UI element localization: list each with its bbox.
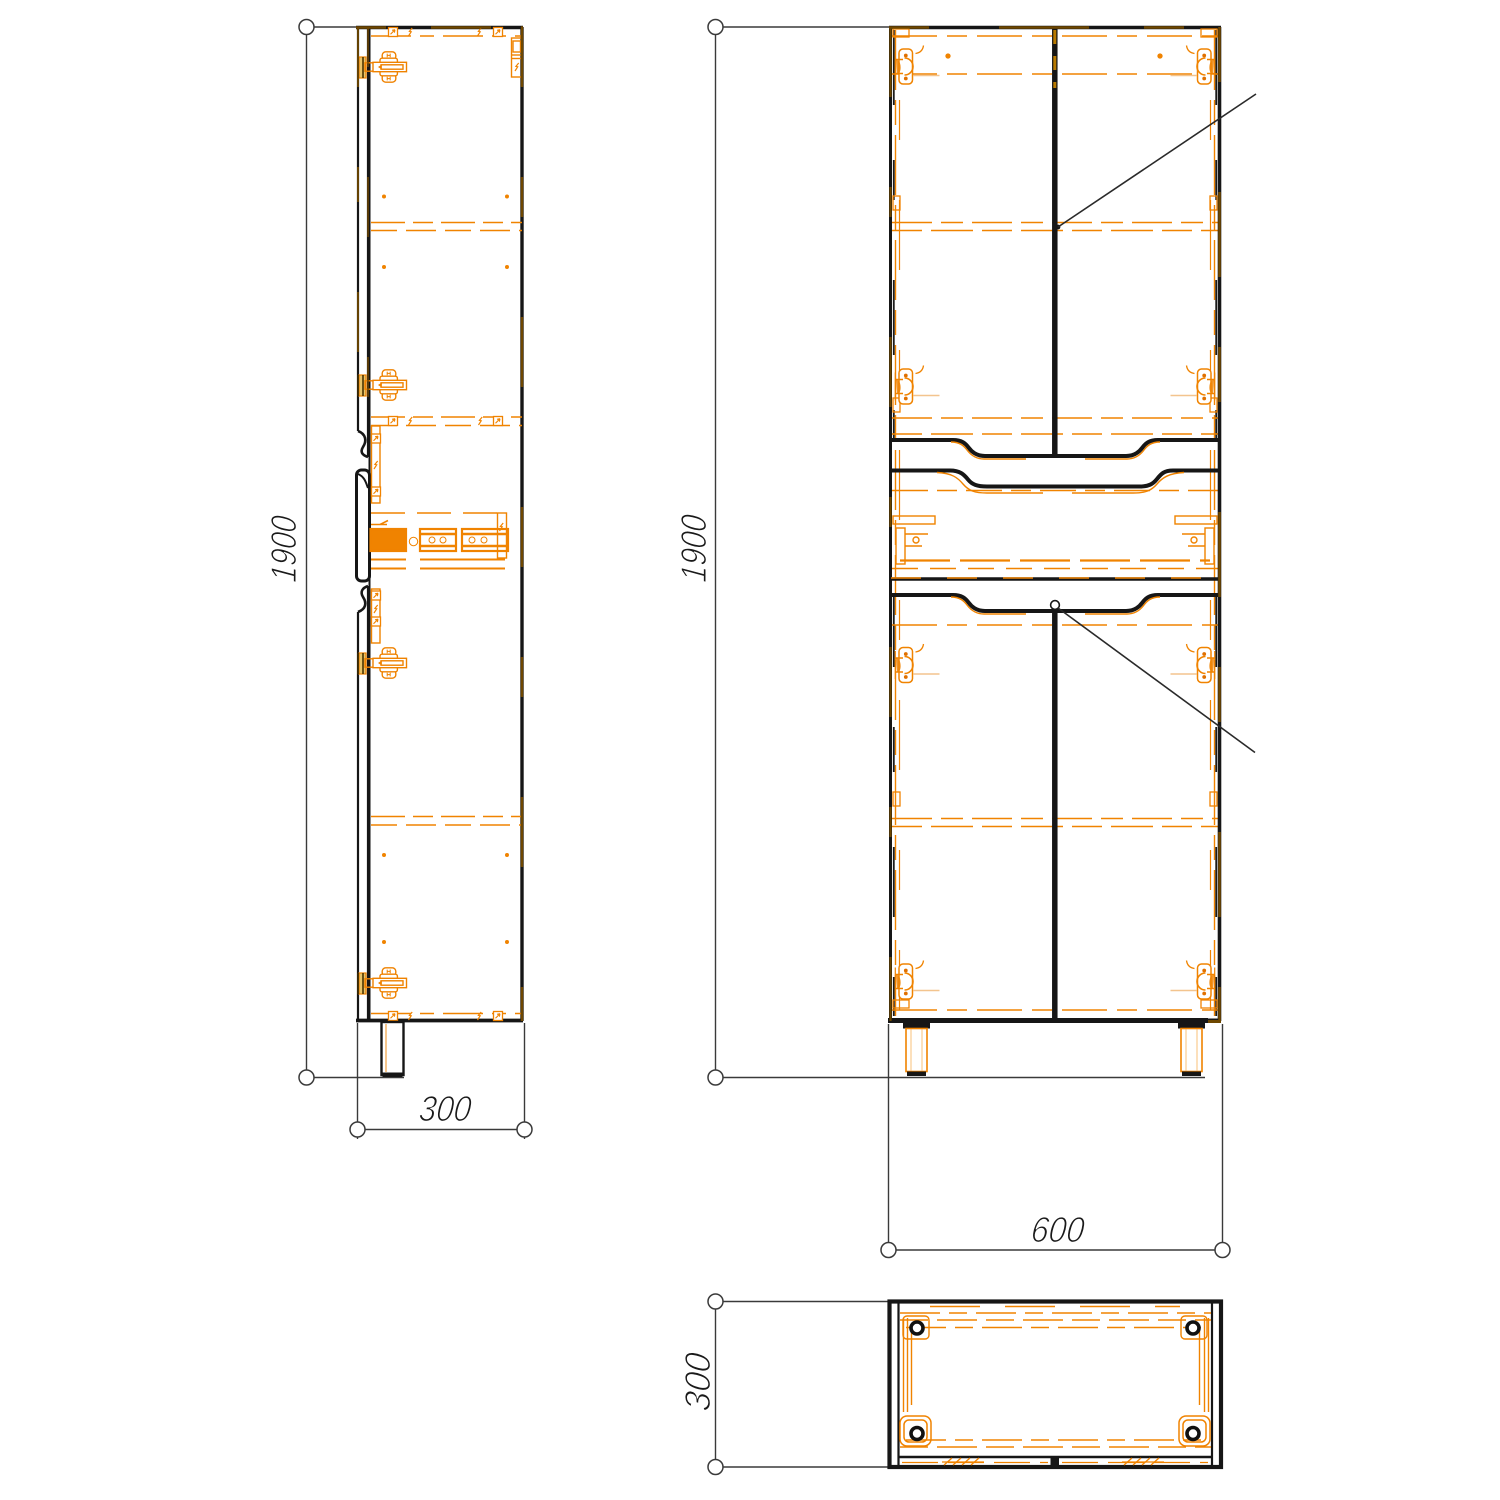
svg-text:300: 300 <box>417 1088 473 1129</box>
svg-text:1900: 1900 <box>263 514 304 584</box>
svg-text:1900: 1900 <box>673 513 714 584</box>
svg-text:600: 600 <box>1029 1209 1086 1250</box>
svg-text:300: 300 <box>677 1351 718 1413</box>
